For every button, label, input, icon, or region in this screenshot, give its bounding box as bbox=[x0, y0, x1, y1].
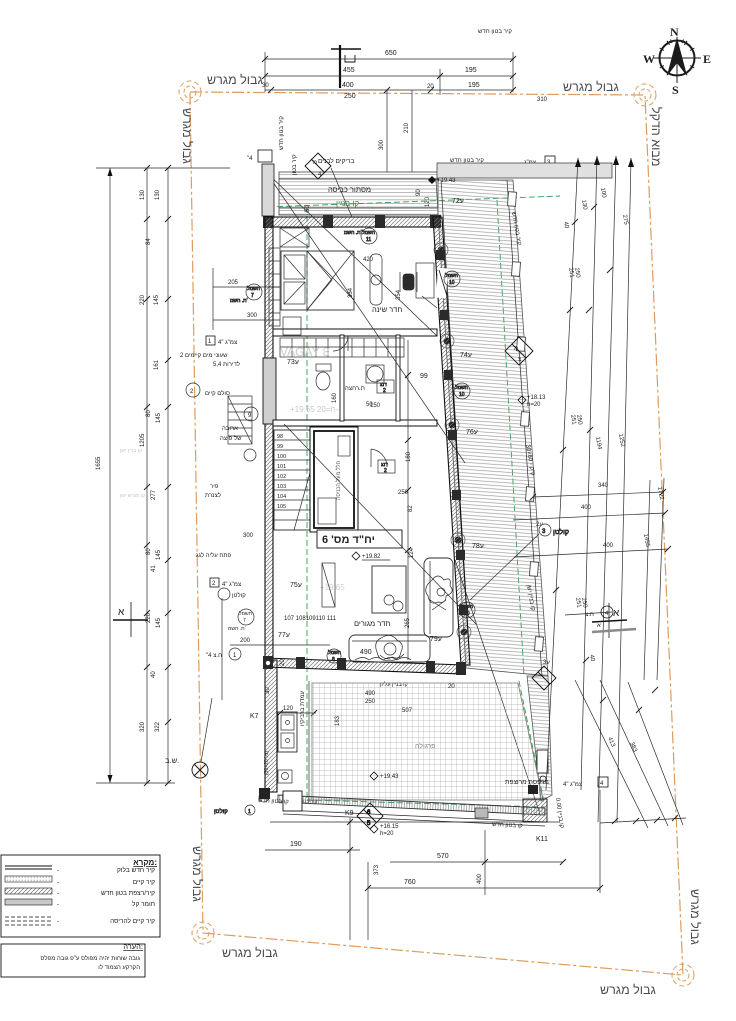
svg-text:חשמל: חשמל bbox=[239, 610, 252, 617]
svg-text:גבול מגרש: גבול מגרש bbox=[563, 80, 619, 94]
svg-text:130: 130 bbox=[155, 189, 161, 200]
svg-text:א: א bbox=[613, 608, 620, 619]
svg-text:+19.43: +19.43 bbox=[380, 774, 399, 780]
svg-text:130: 130 bbox=[140, 189, 146, 200]
svg-text:420: 420 bbox=[363, 257, 374, 263]
svg-text:220: 220 bbox=[140, 294, 146, 305]
svg-text:200: 200 bbox=[240, 638, 251, 644]
svg-text:30: 30 bbox=[265, 687, 271, 694]
svg-text:102: 102 bbox=[277, 474, 286, 480]
svg-text:W: W bbox=[643, 52, 655, 66]
svg-text:145: 145 bbox=[156, 412, 162, 423]
svg-text:210: 210 bbox=[404, 122, 410, 133]
svg-text:מ: מ bbox=[514, 346, 518, 352]
svg-text:73ע: 73ע bbox=[287, 359, 299, 366]
svg-text:גבול מגרש: גבול מגרש bbox=[190, 846, 204, 902]
svg-text:גבול מגרש: גבול מגרש bbox=[688, 889, 702, 945]
svg-text:1205: 1205 bbox=[140, 433, 146, 447]
svg-text:72ע: 72ע bbox=[452, 198, 464, 205]
svg-text:1655: 1655 bbox=[96, 456, 102, 470]
svg-text:190: 190 bbox=[290, 841, 302, 848]
svg-text:98: 98 bbox=[277, 434, 283, 440]
svg-text:הקרקע הצמוד לו: הקרקע הצמוד לו bbox=[98, 963, 140, 971]
svg-text:ת. חשמ': ת. חשמ' bbox=[230, 298, 248, 304]
svg-text:+19.65 ח=20-: +19.65 ח=20- bbox=[290, 405, 339, 414]
svg-text:11: 11 bbox=[366, 237, 371, 243]
svg-text:ש.ב.: ש.ב. bbox=[165, 756, 179, 765]
svg-text:עמדת ברביקיו: עמדת ברביקיו bbox=[300, 691, 306, 727]
svg-text:145: 145 bbox=[156, 549, 162, 560]
svg-text:277: 277 bbox=[151, 489, 157, 500]
svg-text:30: 30 bbox=[262, 83, 269, 89]
svg-text:K7: K7 bbox=[250, 713, 259, 720]
svg-text:161: 161 bbox=[154, 359, 160, 370]
svg-text:320: 320 bbox=[140, 721, 146, 732]
svg-text:הערה:: הערה: bbox=[123, 942, 143, 951]
svg-text:80: 80 bbox=[146, 548, 152, 555]
svg-text:107 108109110 111: 107 108109110 111 bbox=[284, 616, 337, 622]
svg-text:180: 180 bbox=[406, 451, 412, 462]
svg-text:79ע: 79ע bbox=[430, 636, 442, 643]
svg-text:78ע: 78ע bbox=[472, 543, 484, 550]
svg-text:5,4 לדירות: 5,4 לדירות bbox=[213, 360, 240, 368]
svg-text:40: 40 bbox=[151, 671, 157, 678]
svg-text:צמ"ג "4: צמ"ג "4 bbox=[563, 782, 583, 788]
svg-text:400: 400 bbox=[477, 873, 483, 884]
svg-text:10: 10 bbox=[459, 392, 465, 398]
svg-text:-: - bbox=[57, 867, 59, 874]
svg-text:310: 310 bbox=[537, 97, 548, 103]
svg-text:2: 2 bbox=[383, 388, 386, 394]
svg-text:80: 80 bbox=[146, 410, 152, 417]
svg-text:145: 145 bbox=[156, 617, 162, 628]
svg-text:לצנרת: לצנרת bbox=[205, 491, 221, 499]
svg-text:צמ"ג "4: צמ"ג "4 bbox=[222, 582, 242, 588]
svg-text:E: E bbox=[703, 52, 711, 66]
svg-text:קו בניין ישן: קו בניין ישן bbox=[120, 448, 142, 454]
svg-text:ת.רחצה: ת.רחצה bbox=[345, 386, 365, 392]
svg-text:קיר בטון חדש: קיר בטון חדש bbox=[478, 29, 512, 35]
svg-text:101: 101 bbox=[277, 464, 286, 470]
svg-text:250: 250 bbox=[365, 699, 376, 705]
svg-text:2: 2 bbox=[384, 468, 387, 474]
svg-text:250: 250 bbox=[398, 490, 409, 496]
svg-text:סולם קיים: סולם קיים bbox=[205, 389, 230, 397]
svg-text:300: 300 bbox=[243, 533, 254, 539]
svg-text:1: 1 bbox=[248, 809, 251, 815]
svg-text:220: 220 bbox=[146, 612, 152, 623]
svg-text:322: 322 bbox=[155, 721, 161, 732]
svg-text:76ע: 76ע bbox=[466, 429, 478, 436]
svg-text:פרגולה: פרגולה bbox=[415, 742, 435, 750]
svg-text:82: 82 bbox=[408, 505, 414, 512]
svg-text:צמ"ג "4: צמ"ג "4 bbox=[218, 340, 238, 346]
svg-text:99: 99 bbox=[277, 444, 283, 450]
svg-text:650: 650 bbox=[385, 50, 397, 57]
svg-text:+16.15: +16.15 bbox=[380, 824, 399, 830]
svg-text:10: 10 bbox=[464, 611, 470, 617]
svg-text:265: 265 bbox=[405, 617, 411, 628]
svg-text:גובה שוחות יהיה מפולס ע"פ גובה: גובה שוחות יהיה מפולס ע"פ גובה מפלס bbox=[41, 954, 141, 962]
svg-text:105: 105 bbox=[277, 504, 286, 510]
svg-text:400: 400 bbox=[603, 543, 614, 549]
svg-text:41: 41 bbox=[151, 565, 157, 572]
svg-text:קיר בטון: קיר בטון bbox=[292, 154, 298, 175]
svg-text:מסתור כביסה: מסתור כביסה bbox=[328, 185, 371, 194]
svg-text:-: - bbox=[57, 901, 59, 908]
svg-text:ת. חשמ': ת. חשמ' bbox=[344, 230, 362, 236]
svg-text:חשמל: חשמל bbox=[247, 285, 260, 292]
svg-text:+18.13: +18.13 bbox=[527, 395, 546, 401]
svg-text:75ע: 75ע bbox=[290, 582, 302, 589]
svg-text:20: 20 bbox=[427, 84, 434, 90]
svg-text:77ע: 77ע bbox=[278, 632, 290, 639]
svg-text:+19.43: +19.43 bbox=[437, 178, 456, 184]
svg-text:קולטן: קולטן bbox=[553, 528, 569, 536]
svg-text:גבול מגרש: גבול מגרש bbox=[222, 946, 278, 960]
svg-text:מקרא:: מקרא: bbox=[133, 858, 157, 867]
svg-text:"4: "4 bbox=[247, 156, 253, 162]
svg-text:2 שעוני מים קיימים: 2 שעוני מים קיימים bbox=[180, 353, 228, 359]
svg-text:3ע: 3ע bbox=[543, 660, 550, 666]
svg-text:+19.65: +19.65 bbox=[320, 583, 345, 592]
svg-text:"4 ח.צ: "4 ח.צ bbox=[206, 653, 222, 659]
svg-text:507: 507 bbox=[402, 708, 413, 714]
svg-text:(30×20 צל): (30×20 צל) bbox=[263, 751, 270, 775]
svg-text:K11: K11 bbox=[536, 836, 548, 843]
svg-text:195: 195 bbox=[468, 82, 480, 89]
svg-text:250: 250 bbox=[344, 93, 356, 100]
svg-text:ח.צ: ח.צ bbox=[585, 612, 594, 618]
svg-text:N: N bbox=[670, 25, 679, 39]
svg-text:של פיצה: של פיצה bbox=[220, 434, 242, 442]
svg-text:760: 760 bbox=[404, 879, 416, 886]
svg-text:פתח עליה לגג: פתח עליה לגג bbox=[196, 551, 231, 559]
svg-text:84: 84 bbox=[146, 238, 152, 245]
svg-text:פיר: פיר bbox=[210, 484, 219, 490]
svg-text:100: 100 bbox=[277, 454, 286, 460]
svg-text:570: 570 bbox=[437, 853, 449, 860]
svg-text:120: 120 bbox=[283, 706, 294, 712]
svg-text:7: 7 bbox=[243, 618, 246, 624]
svg-text:גבול מגרש: גבול מגרש bbox=[600, 983, 656, 997]
svg-text:חדר מגורים: חדר מגורים bbox=[354, 619, 390, 628]
svg-text:400: 400 bbox=[342, 82, 354, 89]
svg-text:74ע: 74ע bbox=[460, 352, 472, 359]
svg-text:חשמל: חשמל bbox=[328, 649, 341, 656]
svg-text:א: א bbox=[118, 607, 125, 618]
svg-text:קיר קיים: קיר קיים bbox=[133, 879, 155, 886]
svg-text:קיר קיים להריסה: קיר קיים להריסה bbox=[110, 917, 155, 925]
svg-text:+19.82: +19.82 bbox=[362, 554, 381, 560]
svg-text:קיר בטון חדש: קיר בטון חדש bbox=[450, 158, 484, 164]
svg-text:-: - bbox=[57, 879, 59, 886]
svg-text:124: 124 bbox=[409, 547, 415, 558]
svg-text:א: א bbox=[597, 623, 601, 629]
svg-text:8: 8 bbox=[332, 657, 335, 663]
svg-text:10: 10 bbox=[449, 280, 455, 286]
svg-text:ארובה: ארובה bbox=[222, 426, 238, 432]
svg-text:455: 455 bbox=[343, 67, 355, 74]
svg-text:K9: K9 bbox=[345, 810, 354, 817]
svg-text:20: 20 bbox=[280, 659, 286, 666]
svg-text:h=20: h=20 bbox=[380, 831, 394, 837]
svg-text:קולטן: קולטן bbox=[214, 807, 228, 815]
svg-text:160: 160 bbox=[332, 392, 338, 403]
svg-text:205: 205 bbox=[228, 280, 239, 286]
svg-text:קו מגרש ישן: קו מגרש ישן bbox=[120, 493, 145, 499]
svg-text:קיר/רצפת בטון חדש: קיר/רצפת בטון חדש bbox=[101, 890, 155, 897]
svg-text:300: 300 bbox=[247, 313, 258, 319]
svg-text:103: 103 bbox=[277, 484, 286, 490]
svg-text:S: S bbox=[672, 83, 679, 97]
svg-text:חלל מעל הכניסה: חלל מעל הכניסה bbox=[335, 460, 342, 500]
svg-text:מבוא הדקל: מבוא הדקל bbox=[649, 107, 663, 166]
svg-text:גבול מגרש: גבול מגרש bbox=[207, 73, 263, 87]
svg-text:145: 145 bbox=[154, 294, 160, 305]
svg-text:חשמל: חשמל bbox=[455, 384, 468, 391]
svg-text:99: 99 bbox=[420, 373, 428, 380]
svg-text:h=20: h=20 bbox=[527, 402, 541, 408]
svg-text:490: 490 bbox=[365, 691, 376, 697]
svg-text:20: 20 bbox=[448, 684, 455, 690]
svg-text:373: 373 bbox=[374, 864, 380, 875]
svg-text:ת. חשמ': ת. חשמ' bbox=[228, 626, 246, 632]
svg-text:400: 400 bbox=[581, 505, 592, 511]
svg-text:VAGAY 8: VAGAY 8 bbox=[280, 345, 330, 359]
svg-text:340: 340 bbox=[598, 483, 609, 489]
svg-text:490: 490 bbox=[360, 649, 372, 656]
svg-text:150: 150 bbox=[370, 403, 381, 409]
svg-text:חשמל: חשמל bbox=[460, 603, 473, 610]
svg-text:354: 354 bbox=[396, 289, 402, 300]
svg-text:חדר שינה: חדר שינה bbox=[372, 305, 402, 314]
svg-text:חומר קל: חומר קל bbox=[132, 900, 155, 908]
svg-text:גבול מגרש: גבול מגרש bbox=[180, 108, 194, 164]
svg-text:קיר בטון חדש: קיר בטון חדש bbox=[279, 116, 285, 150]
svg-text:חשמל: חשמל bbox=[362, 229, 375, 236]
svg-text:104: 104 bbox=[277, 494, 286, 500]
svg-text:-: - bbox=[57, 890, 59, 897]
svg-text:7: 7 bbox=[251, 293, 254, 299]
svg-text:300: 300 bbox=[379, 139, 385, 150]
svg-text:יח"ד מס' 6: יח"ד מס' 6 bbox=[322, 534, 375, 546]
svg-text:-: - bbox=[57, 918, 59, 925]
svg-text:קולטן: קולטן bbox=[232, 591, 246, 599]
svg-text:חשמל: חשמל bbox=[445, 272, 458, 279]
svg-text:מ: מ bbox=[313, 160, 317, 166]
svg-text:195: 195 bbox=[465, 67, 477, 74]
svg-text:מרפסת מרוצפת: מרפסת מרוצפת bbox=[505, 779, 549, 786]
svg-text:קיר חדש בלוק: קיר חדש בלוק bbox=[117, 866, 155, 874]
svg-text:50: 50 bbox=[305, 205, 311, 212]
